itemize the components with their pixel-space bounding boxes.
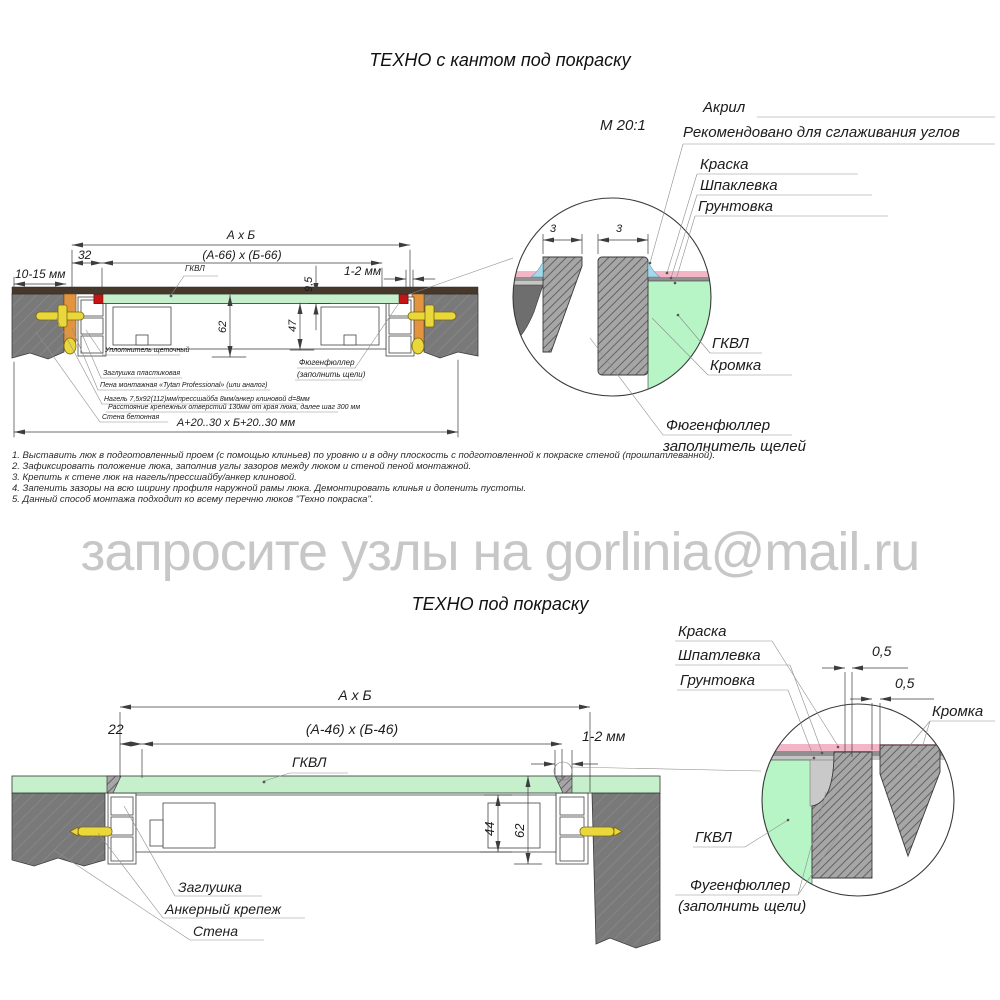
callout-wall-bottom: Стена bbox=[193, 924, 238, 939]
callout-dowel: Нагель 7,5х92(112)мм/прессшайба 8мм/анке… bbox=[104, 396, 310, 403]
bdetail-slab-right bbox=[880, 745, 940, 856]
top-wall-left bbox=[12, 294, 64, 359]
detail-putty-layer-left bbox=[512, 277, 543, 281]
detail-profile-left bbox=[543, 257, 582, 352]
dim-inner-top: (А-66) х (Б-66) bbox=[102, 249, 382, 262]
label-fugen-bottom-2: (заполнить щели) bbox=[678, 899, 806, 915]
top-title: ТЕХНО с кантом под покраску bbox=[0, 50, 1000, 71]
top-detail-dimensions bbox=[543, 234, 648, 254]
label-paint-top: Краска bbox=[700, 157, 748, 173]
dim-gkvl-top: ГКВЛ bbox=[185, 265, 205, 273]
dim-axb-bottom: А х Б bbox=[120, 688, 590, 703]
dim-10-15: 10-15 мм bbox=[15, 268, 65, 281]
callout-fugen-top-1: Фюгенфюллер bbox=[299, 359, 355, 367]
bottom-frame-left bbox=[108, 793, 136, 864]
bottom-anchor-left bbox=[70, 827, 112, 836]
note-4: 4. Запенить зазоры на всю ширину профиля… bbox=[12, 483, 526, 494]
note-5: 5. Данный способ монтажа подходит ко все… bbox=[12, 494, 373, 505]
callout-foam: Пена монтажная «Tytan Professional» (или… bbox=[100, 382, 267, 389]
label-fugen-top-1: Фюгенфюллер bbox=[666, 418, 770, 434]
note-1: 1. Выставить люк в подготовленный проем … bbox=[12, 450, 715, 461]
label-primer-bottom: Грунтовка bbox=[680, 673, 755, 689]
callout-spacing: Расстояние крепежных отверстий 130мм от … bbox=[108, 404, 360, 411]
dim-3-right: 3 bbox=[616, 224, 622, 236]
frame-jamb-left bbox=[78, 297, 106, 356]
frame-jamb-right bbox=[386, 297, 414, 356]
dim-47: 47 bbox=[288, 320, 300, 332]
label-acryl: Акрил bbox=[703, 100, 745, 116]
dim-1-2-bottom: 1-2 мм bbox=[582, 729, 625, 744]
dim-05-bottom: 0,5 bbox=[895, 676, 914, 691]
callout-brush-seal: Уплотнитель щеточный bbox=[105, 347, 189, 354]
label-gkvl-bottom: ГКВЛ bbox=[695, 830, 732, 846]
door-leaf bbox=[106, 303, 386, 349]
callout-plug-top: Заглушка пластиковая bbox=[103, 370, 180, 377]
dim-62-bottom: 62 bbox=[513, 824, 527, 838]
label-putty-bottom: Шпатлевка bbox=[678, 648, 761, 664]
bottom-section-drawing bbox=[12, 707, 761, 948]
callout-anchor: Анкерный крепеж bbox=[165, 902, 281, 917]
dim-22: 22 bbox=[108, 722, 124, 737]
label-kromka-bottom: Кромка bbox=[932, 704, 983, 720]
dim-32: 32 bbox=[78, 249, 91, 262]
dim-62-top: 62 bbox=[218, 321, 230, 333]
label-paint-bottom: Краска bbox=[678, 624, 726, 640]
kant-corner-left bbox=[94, 295, 103, 304]
label-primer-top: Грунтовка bbox=[698, 199, 773, 215]
label-acryl-note: Рекомендовано для сглаживания углов bbox=[683, 125, 960, 141]
watermark: запросите узлы на gorlinia@mail.ru bbox=[0, 521, 1000, 583]
drawing-sheet: ТЕХНО с кантом под покраску М 20:1 Акрил… bbox=[0, 0, 1000, 1000]
label-gkvl-detail-top: ГКВЛ bbox=[712, 336, 749, 352]
dim-3-left: 3 bbox=[550, 224, 556, 236]
dim-gkvl-bottom: ГКВЛ bbox=[292, 755, 327, 770]
dim-axb-top: А х Б bbox=[72, 229, 410, 242]
label-fugen-bottom-1: Фугенфюллер bbox=[690, 878, 790, 894]
note-3: 3. Крепить к стене люк на нагель/прессша… bbox=[12, 472, 297, 483]
note-2: 2. Зафиксировать положение люка, заполни… bbox=[12, 461, 471, 472]
dim-44: 44 bbox=[483, 822, 497, 836]
dim-opening: А+20..30 х Б+20..30 мм bbox=[14, 418, 458, 430]
painted-layer-strip bbox=[12, 287, 478, 294]
callout-wall-top: Стена бетонная bbox=[102, 414, 159, 421]
label-putty-top: Шпаклевка bbox=[700, 178, 778, 194]
label-kromka-top: Кромка bbox=[710, 358, 761, 374]
callout-fugen-top-2: (заполнить щели) bbox=[297, 371, 365, 379]
bottom-wall-right bbox=[592, 793, 660, 948]
dim-9-5: 9,5 bbox=[304, 277, 316, 292]
detail-putty-layer-right bbox=[648, 277, 712, 281]
bottom-anchor-right bbox=[580, 827, 622, 836]
dim-1-2-top: 1-2 мм bbox=[344, 265, 381, 278]
dim-inner-bottom: (А-46) х (Б-46) bbox=[142, 722, 562, 737]
bottom-title: ТЕХНО под покраску bbox=[0, 594, 1000, 615]
detail-wall-piece bbox=[512, 285, 543, 344]
kant-corner-right bbox=[399, 295, 408, 304]
top-detail-circle bbox=[512, 117, 995, 435]
detail-gkvl-right bbox=[648, 281, 712, 397]
scale-label: М 20:1 bbox=[600, 118, 646, 134]
callout-plug-bottom: Заглушка bbox=[178, 880, 242, 895]
detail-profile-right bbox=[598, 257, 648, 375]
detail-primer-layer-left bbox=[512, 281, 543, 285]
gkvl-panel bbox=[94, 294, 408, 304]
dim-05-top: 0,5 bbox=[872, 644, 891, 659]
